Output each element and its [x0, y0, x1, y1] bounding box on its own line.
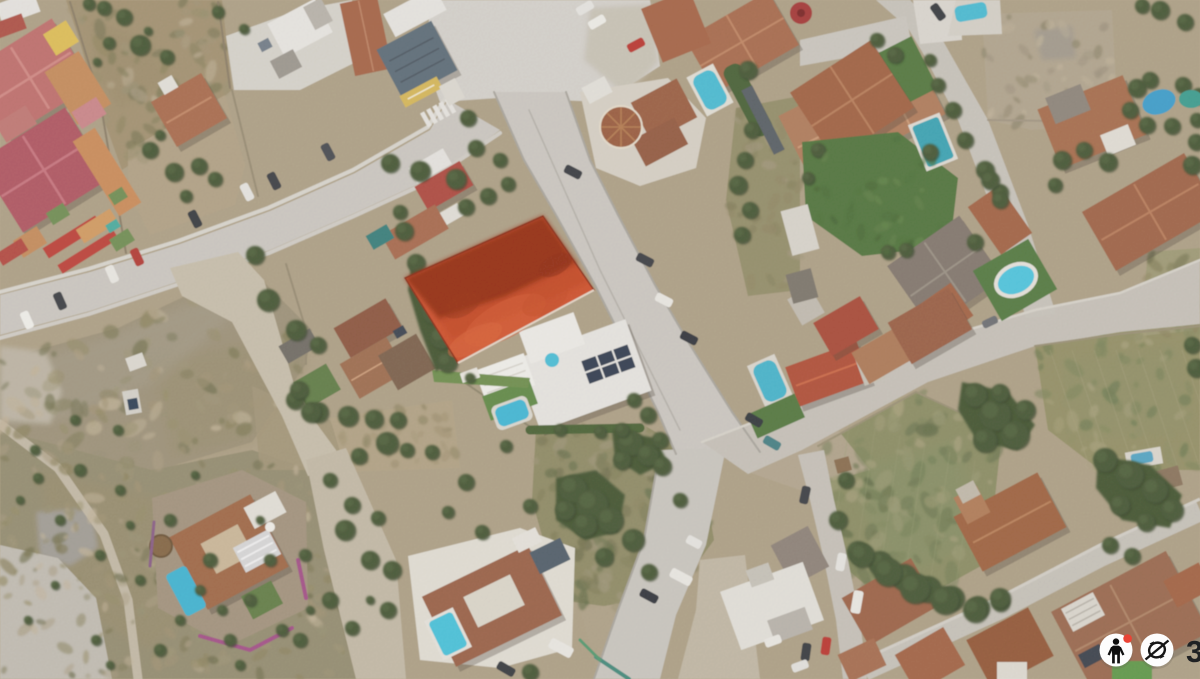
- svg-text:3: 3: [1186, 634, 1200, 669]
